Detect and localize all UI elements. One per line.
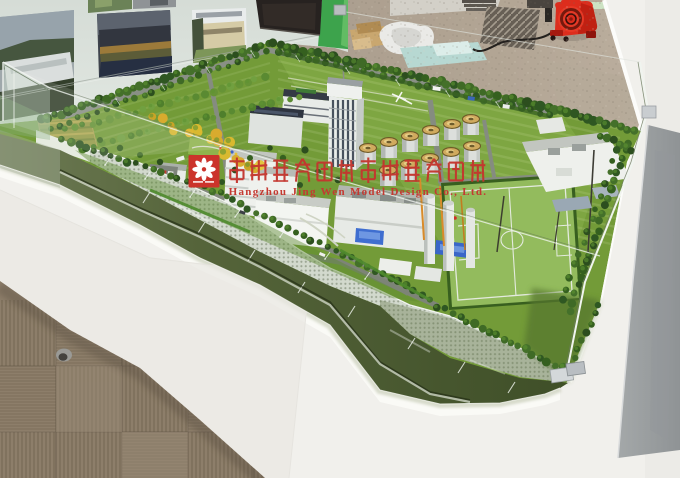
svg-text:Hangzhou Jing Wen Model Design: Hangzhou Jing Wen Model Design Co., Ltd. — [229, 186, 488, 198]
